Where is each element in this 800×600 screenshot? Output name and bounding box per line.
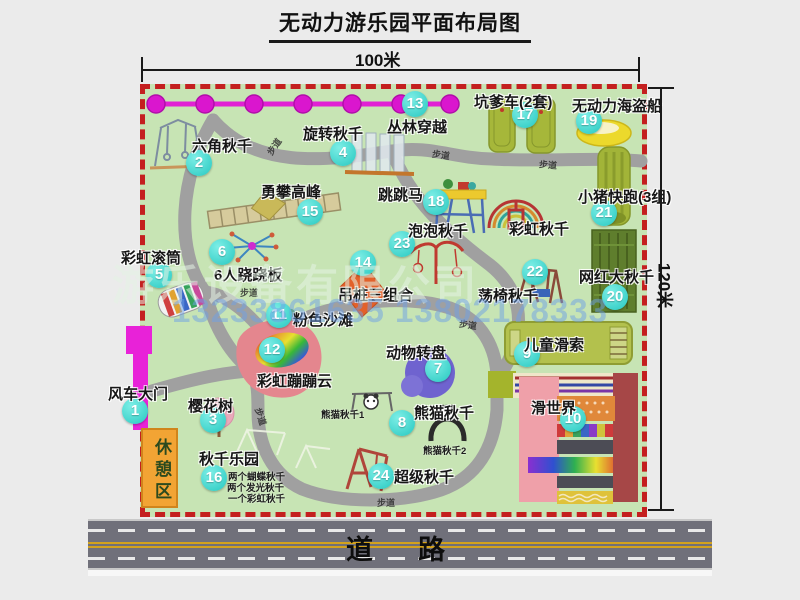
item-24-badge: 24 — [368, 463, 394, 489]
page-title: 无动力游乐园平面布局图 — [0, 7, 800, 43]
item-8-sublabel-2: 熊猫秋千2 — [423, 443, 466, 457]
item-23-label: 泡泡秋千 — [408, 220, 468, 241]
item-14-label: 吊桩三组合 — [338, 284, 413, 305]
item-10-label: 滑世界 — [531, 397, 576, 418]
item-12-badge: 12 — [259, 337, 285, 363]
slide-world-icon — [488, 371, 638, 504]
item-22-label: 荡椅秋千 — [478, 285, 538, 306]
page-title-text: 无动力游乐园平面布局图 — [269, 7, 531, 43]
item-22-badge: 22 — [522, 259, 548, 285]
item-20-label: 网红大秋千 — [579, 266, 654, 287]
walkway-label-4: 步道 — [240, 286, 258, 299]
item-3-label: 樱花树 — [188, 395, 233, 416]
item-16-label: 秋千乐园 — [199, 448, 259, 469]
item-21-label: 小猪快跑(3组) — [578, 186, 671, 207]
item-2-label: 六角秋千 — [192, 135, 252, 156]
item-19-label: 无动力海盗船 — [572, 95, 662, 116]
item-4-label: 旋转秋千 — [303, 123, 363, 144]
item-15-badge: 15 — [297, 199, 323, 225]
item-rest-area-label: 休憩区 — [149, 438, 174, 504]
height-dimension-label: 120米 — [654, 256, 679, 316]
walkway-label-2: 步道 — [431, 147, 451, 162]
width-dimension-tick-left — [141, 57, 143, 82]
item-8-sublabel-1: 熊猫秋千1 — [321, 407, 364, 421]
item-16-sublabel-3: 一个彩虹秋千 — [228, 491, 285, 505]
item-8-badge: 8 — [389, 410, 415, 436]
item-13-badge: 13 — [402, 91, 428, 117]
width-dimension-tick-right — [638, 57, 640, 82]
item-rainbow-swing-label: 彩虹秋千 — [509, 218, 569, 239]
item-14-badge: 14 — [350, 250, 376, 276]
item-8-label: 熊猫秋千 — [414, 402, 474, 423]
height-dimension-tick-bottom — [648, 509, 674, 511]
walkway-label-5: 步道 — [458, 317, 478, 332]
item-17-label: 坑爹车(2套) — [474, 91, 552, 112]
width-dimension-label: 100米 — [355, 46, 400, 71]
item-11-label: 粉色沙滩 — [293, 309, 353, 330]
item-6-label: 6人跷跷板 — [214, 264, 282, 285]
item-11-badge: 11 — [266, 302, 292, 328]
item-18-label: 跳跳马 — [378, 184, 423, 205]
item-18-badge: 18 — [423, 189, 449, 215]
item-6-badge: 6 — [209, 239, 235, 265]
item-12-label: 彩虹蹦蹦云 — [257, 370, 332, 391]
item-24-label: 超级秋千 — [394, 466, 454, 487]
item-9-label: 儿童滑索 — [524, 334, 584, 355]
walkway-label-3: 步道 — [538, 157, 557, 172]
page: 无动力游乐园平面布局图 100米 120米 — [0, 0, 800, 600]
height-dimension-tick-top — [648, 87, 674, 89]
item-15-label: 勇攀高峰 — [261, 181, 321, 202]
item-5-label: 彩虹滚筒 — [121, 247, 181, 268]
item-20-badge: 20 — [602, 284, 628, 310]
item-13-label: 丛林穿越 — [387, 116, 447, 137]
walkway-label-7: 步道 — [377, 496, 395, 509]
item-7-label: 动物转盘 — [386, 342, 446, 363]
item-1-label: 风车大门 — [108, 383, 168, 404]
bubble-swing-icon — [410, 242, 463, 284]
